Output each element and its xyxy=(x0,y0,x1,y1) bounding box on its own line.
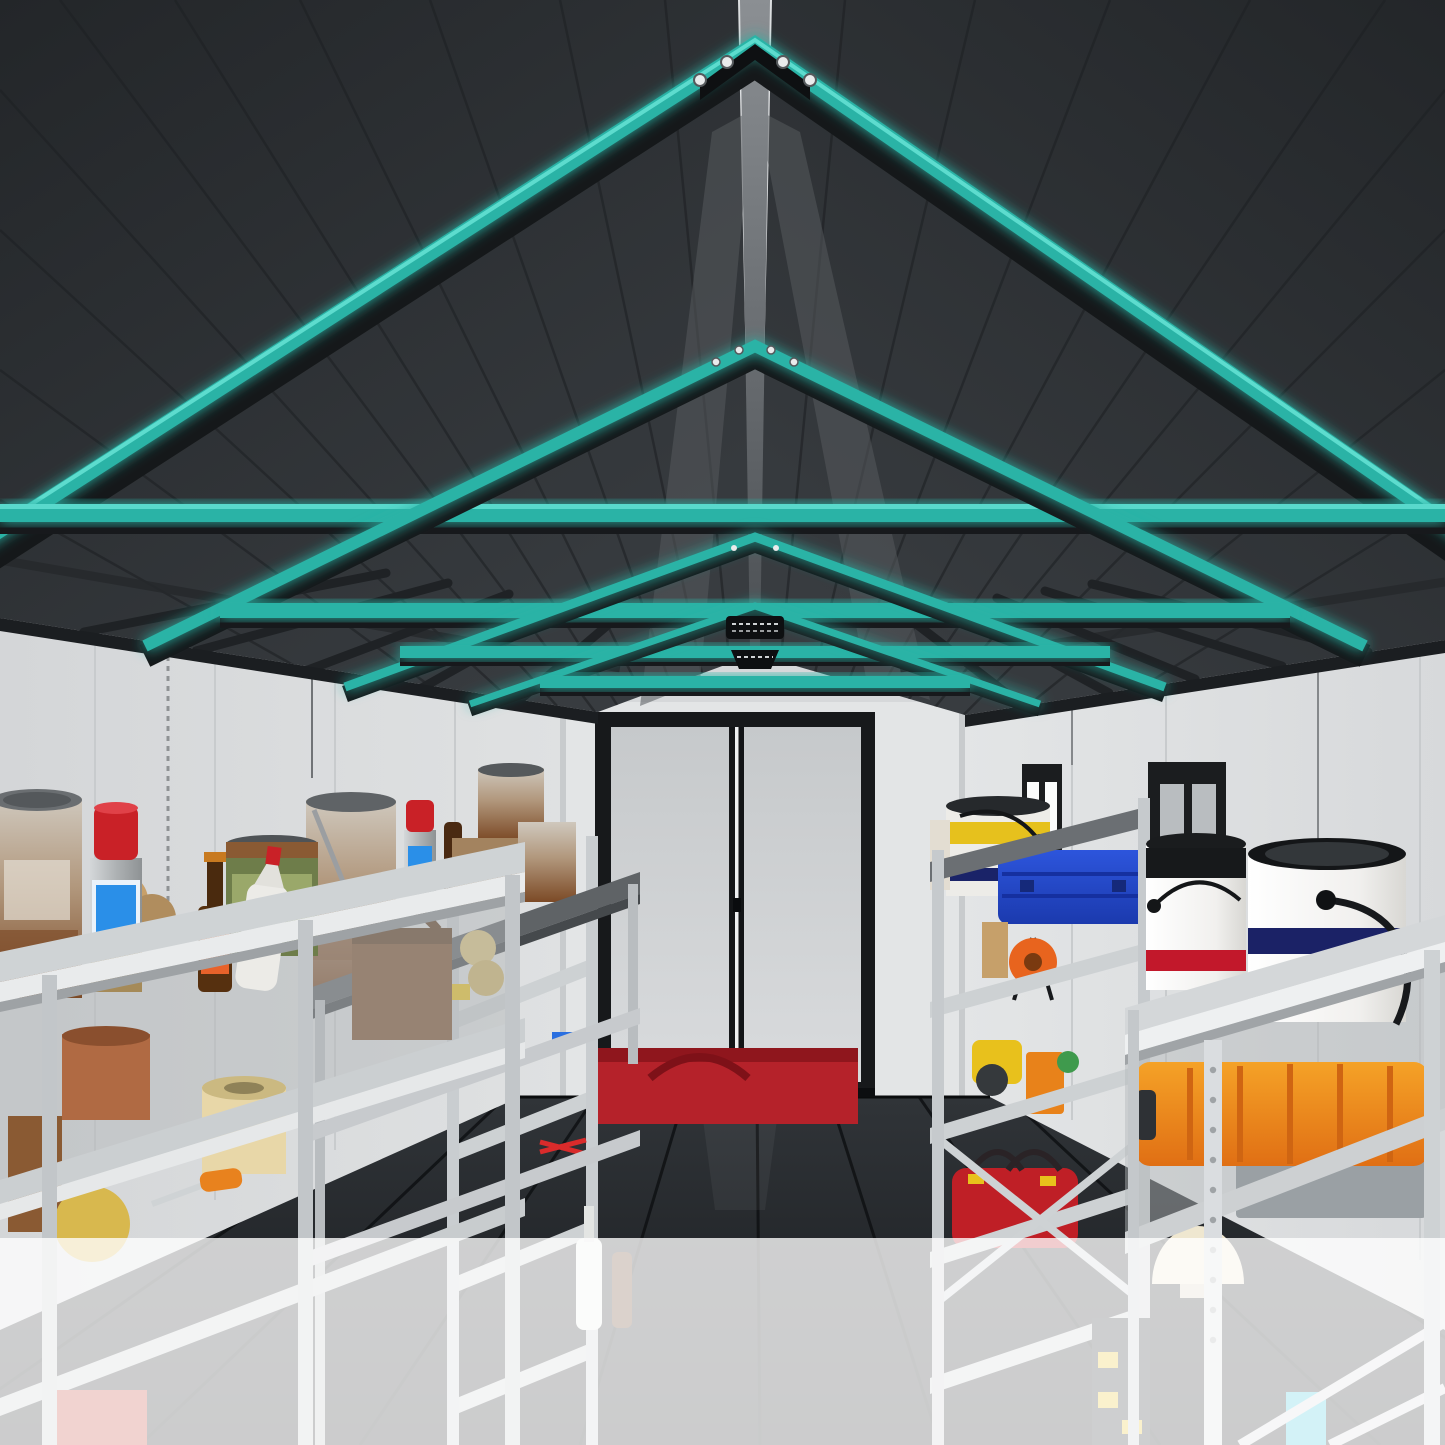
door-handle xyxy=(733,898,741,912)
back-wall-right-corner xyxy=(959,690,965,1110)
collar-tie-4 xyxy=(540,676,970,696)
product-image: LARGE INTERIOR SPACE The high ceiling pr… xyxy=(0,0,1445,1445)
collar-tie-1 xyxy=(0,504,1445,534)
green-tape-roll xyxy=(1057,1051,1079,1073)
clay-pot xyxy=(62,1026,150,1120)
blue-storage-case xyxy=(998,850,1150,924)
gable-vent-1 xyxy=(726,616,784,639)
white-can-red-stripe xyxy=(1146,833,1246,990)
cardboard-stack xyxy=(982,922,1008,978)
door-right-panel xyxy=(744,727,861,1082)
gable-vent-2 xyxy=(731,650,779,669)
caption-overlay: LARGE INTERIOR SPACE The high ceiling pr… xyxy=(0,1238,1445,1445)
shed-interior-illustration xyxy=(0,0,1445,1445)
shelf-post xyxy=(628,884,638,1064)
